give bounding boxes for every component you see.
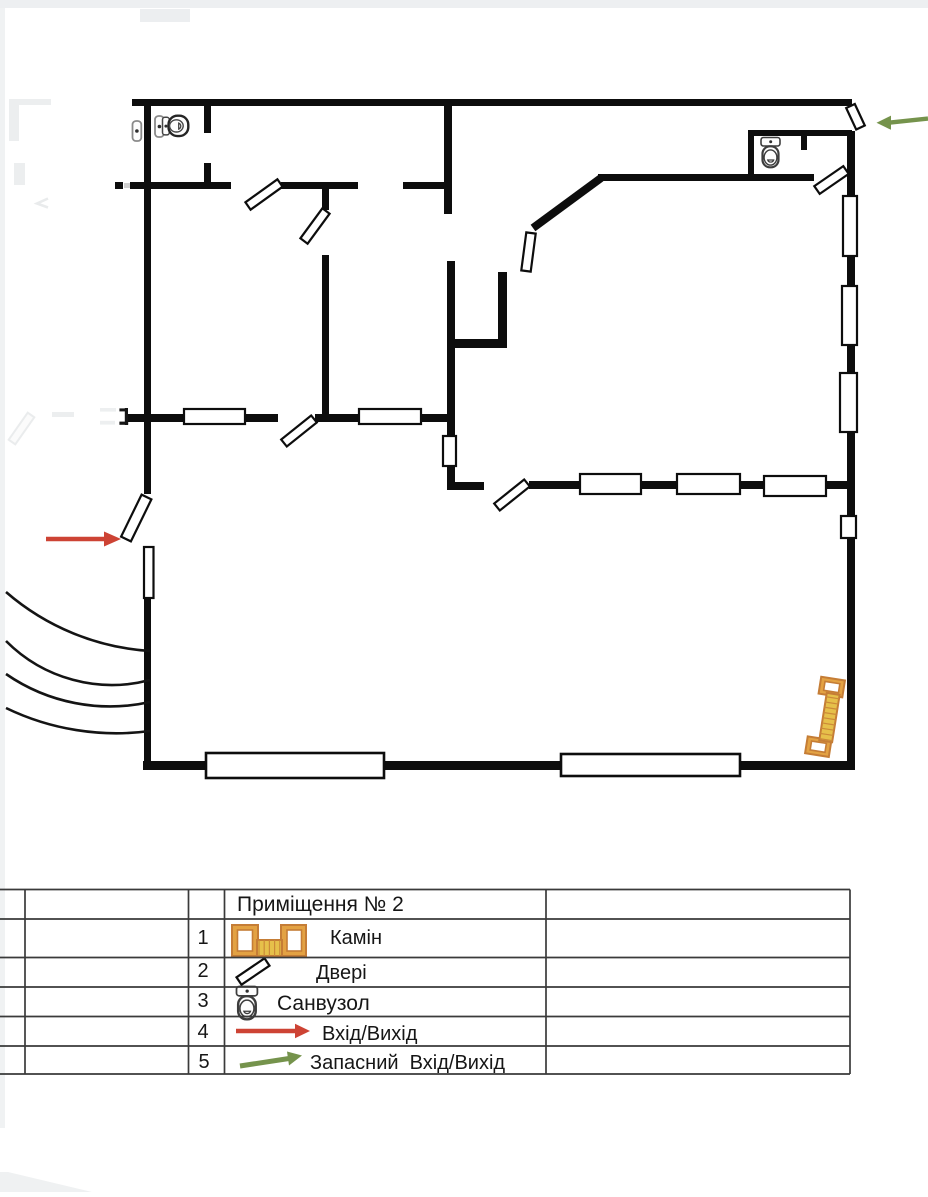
svg-text:1: 1: [197, 927, 208, 949]
svg-text:Вхід/Вихід: Вхід/Вихід: [322, 1023, 418, 1045]
svg-text:4: 4: [197, 1021, 208, 1043]
svg-text:Приміщення № 2: Приміщення № 2: [237, 893, 404, 916]
svg-text:Двері: Двері: [316, 962, 367, 984]
svg-text:3: 3: [197, 990, 208, 1012]
svg-text:5: 5: [198, 1051, 209, 1073]
svg-text:2: 2: [197, 960, 208, 982]
svg-text:Запасний Вхід/Вихід: Запасний Вхід/Вихід: [310, 1052, 505, 1074]
svg-text:Санвузол: Санвузол: [277, 992, 370, 1015]
svg-text:Камін: Камін: [330, 927, 382, 949]
